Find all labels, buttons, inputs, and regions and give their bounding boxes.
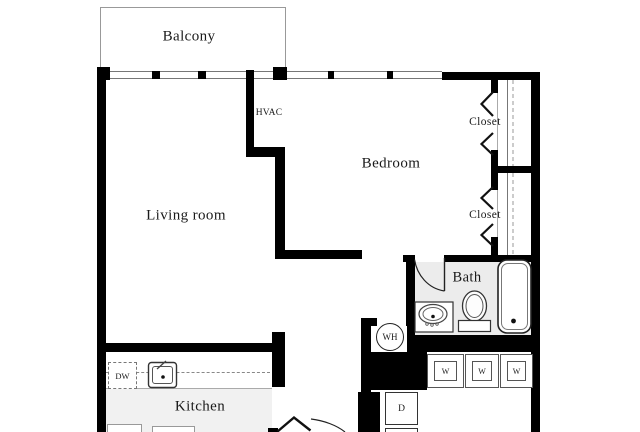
wall-bath-top-right bbox=[444, 255, 540, 262]
wall-living-bedroom bbox=[275, 147, 285, 259]
range bbox=[152, 426, 195, 432]
wall-hall-column bbox=[361, 318, 371, 392]
wall-closet-divider bbox=[493, 166, 531, 173]
room-label-bedroom: Bedroom bbox=[362, 156, 421, 173]
dryer: D bbox=[385, 392, 418, 425]
base-cabinet bbox=[107, 424, 142, 432]
wall-left-exterior bbox=[97, 70, 106, 432]
window-mullion bbox=[387, 71, 393, 79]
wall-kitchen-east-stub bbox=[272, 332, 285, 387]
wall-closet-stub-top bbox=[491, 74, 498, 93]
wall-mid-post bbox=[273, 67, 287, 80]
water-heater-label: WH bbox=[383, 332, 398, 342]
window-mullion bbox=[328, 71, 334, 79]
dishwasher: DW bbox=[108, 362, 137, 389]
wall-entry-block bbox=[268, 428, 278, 432]
room-label-closet-bottom: Closet bbox=[469, 209, 501, 221]
washer-2: W bbox=[465, 354, 499, 388]
entry-bifold-door-icon bbox=[278, 418, 311, 432]
wall-bedroom-south bbox=[275, 250, 362, 259]
wall-laundry-block bbox=[371, 350, 427, 390]
dishwasher-label: DW bbox=[115, 371, 129, 381]
kitchen-sink-icon bbox=[149, 361, 177, 388]
wall-entry-column bbox=[358, 392, 380, 432]
window-mullion bbox=[152, 71, 160, 79]
washer-3-label: W bbox=[507, 361, 526, 381]
washer-1: W bbox=[427, 354, 464, 388]
window-mullion bbox=[198, 71, 206, 79]
entry-door-swing-icon bbox=[311, 419, 345, 432]
dryer-label: D bbox=[398, 404, 405, 414]
fixtures-layer bbox=[0, 0, 640, 432]
washer-3: W bbox=[500, 354, 533, 388]
room-label-hvac: HVAC bbox=[256, 108, 283, 118]
wall-kitchen-north bbox=[97, 343, 275, 352]
room-label-living-room: Living room bbox=[146, 208, 226, 225]
washer-1-label: W bbox=[434, 361, 457, 381]
floor-plan: WH DW W W W D bbox=[0, 0, 640, 432]
washer-2-label: W bbox=[472, 361, 492, 381]
closet-rod-bottom bbox=[508, 173, 514, 255]
wall-closet-stub-bottom bbox=[491, 237, 498, 255]
room-label-balcony: Balcony bbox=[163, 29, 216, 46]
closet-rod-top bbox=[508, 80, 514, 166]
room-label-closet-top: Closet bbox=[469, 116, 501, 128]
room-label-bath: Bath bbox=[453, 270, 482, 287]
dryer-2 bbox=[385, 428, 418, 432]
water-heater-icon: WH bbox=[376, 323, 404, 351]
wall-hvac-left bbox=[246, 70, 254, 157]
room-label-kitchen: Kitchen bbox=[175, 399, 225, 416]
